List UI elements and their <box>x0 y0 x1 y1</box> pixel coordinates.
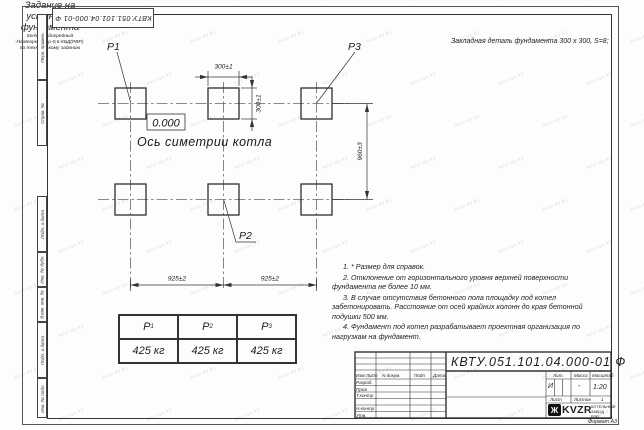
masshtab-value: 1:20 <box>593 384 607 391</box>
kvzr-logo-icon: Ж <box>548 404 561 416</box>
listov-value: 1 <box>601 397 604 402</box>
kvzr-logo-subtitle: КОТЕЛЬНЫЙ ЗАВОД РЭП <box>591 405 613 420</box>
lit-label: Лит. <box>553 373 564 378</box>
drawing-sheet: kvzr.kv.kzkvzr.kv.kzkvzr.kv.kzkvzr.kv.kz… <box>0 0 644 430</box>
kvzr-logo-text: KVZR <box>562 404 592 416</box>
col-izm-list: Изм.Лист <box>356 373 378 378</box>
massa-label: Масса <box>574 373 588 378</box>
format-label: Формат А3 <box>588 419 617 425</box>
massa-value: - <box>578 383 580 390</box>
doc-number: КВТУ.051.101.04.000-01 Ф <box>451 355 626 369</box>
row-prov: Пров <box>356 387 367 392</box>
row-razrab: Разраб. <box>356 380 373 385</box>
col-data: Дата <box>433 373 445 378</box>
row-utv: Утв. <box>356 413 366 418</box>
col-podp: Подп <box>414 373 425 378</box>
row-tkontr: Т.контр <box>356 393 373 398</box>
masshtab-label: Масштаб <box>592 373 613 378</box>
lit-value: И <box>548 383 553 390</box>
listov-label: Листов <box>574 397 591 402</box>
col-n-dokum: N докум. <box>382 373 401 378</box>
list-label: Лист <box>550 397 562 402</box>
row-nkontr: Н.контр <box>356 406 374 411</box>
